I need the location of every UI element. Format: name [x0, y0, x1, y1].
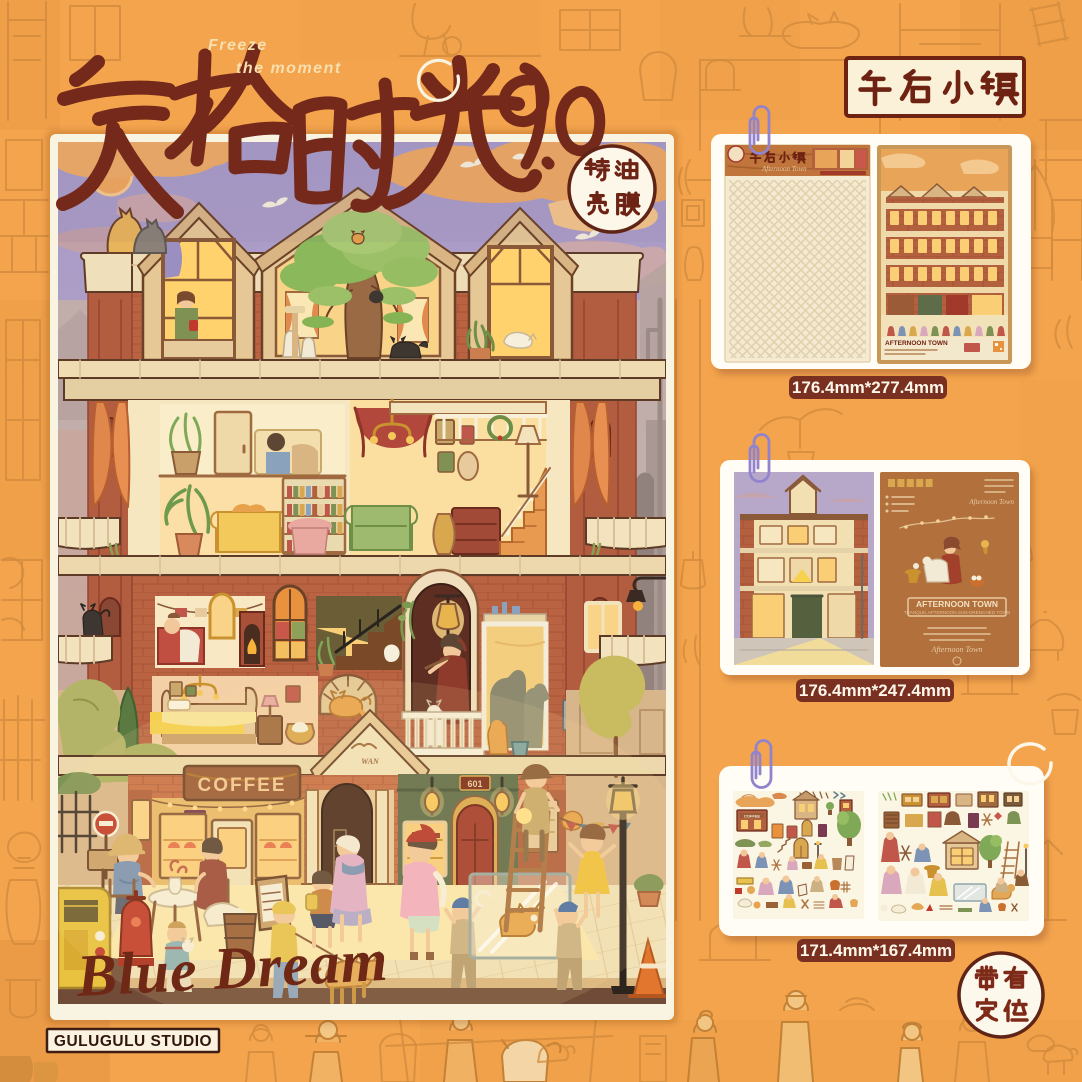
svg-text:Freeze: Freeze — [208, 37, 268, 54]
svg-text:GULUGULU STUDIO: GULUGULU STUDIO — [54, 1033, 212, 1050]
svg-text:AFTERNOON TOWN: AFTERNOON TOWN — [885, 340, 948, 347]
svg-text:176.4mm*247.4mm: 176.4mm*247.4mm — [799, 681, 951, 700]
svg-text:COFFEE: COFFEE — [744, 814, 761, 819]
svg-text:Afternoon Town: Afternoon Town — [930, 645, 982, 654]
svg-text:AFTERNOON TOWN: AFTERNOON TOWN — [916, 599, 998, 609]
svg-text:Afternoon Town: Afternoon Town — [761, 165, 807, 173]
svg-text:TRANQUIL AFTERNOON SUN-DRENCHE: TRANQUIL AFTERNOON SUN-DRENCHED TOWN — [904, 610, 1011, 615]
svg-text:Afternoon Town: Afternoon Town — [968, 498, 1014, 506]
svg-text:176.4mm*277.4mm: 176.4mm*277.4mm — [792, 378, 944, 397]
svg-text:171.4mm*167.4mm: 171.4mm*167.4mm — [800, 941, 952, 960]
svg-text:the moment: the moment — [236, 60, 342, 77]
